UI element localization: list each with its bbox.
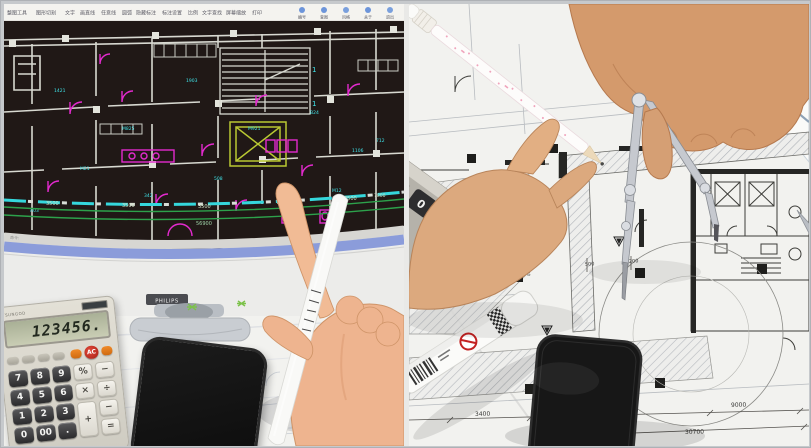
calc-key: . xyxy=(57,422,77,440)
philips-logo-text: PHILIPS xyxy=(155,299,179,305)
dimension-label: 7800 xyxy=(374,193,386,199)
calc-key: + xyxy=(77,401,99,438)
memory-key xyxy=(101,346,113,356)
tool-icon xyxy=(387,7,393,13)
photo-collage: 整图工具 图形切割 文字 画直线 任意线 圆弧 隐藏标注 标注设置 比例 文字查… xyxy=(0,0,811,448)
left-photo: 整图工具 图形切割 文字 画直线 任意线 圆弧 隐藏标注 标注设置 比例 文字查… xyxy=(4,4,404,446)
function-key xyxy=(37,353,50,361)
calc-key: 8 xyxy=(30,367,50,385)
dimension-total: 56900 xyxy=(196,221,212,227)
menu-item: 标注设置 xyxy=(162,10,182,17)
menu-item: 隐藏标注 xyxy=(136,10,156,17)
dimension-label: 3500 xyxy=(198,204,211,210)
calc-key: 1 xyxy=(12,407,32,425)
room-label: 508 xyxy=(214,176,223,182)
function-key xyxy=(22,355,35,363)
calc-key: 0 xyxy=(14,426,34,444)
stair-mark: 1 xyxy=(312,100,316,108)
menu-item: 任意线 xyxy=(101,10,116,17)
room-label: 342 xyxy=(144,193,153,199)
dim-label: 3400 xyxy=(475,411,491,418)
solar-panel xyxy=(81,300,108,311)
room-label: 1106 xyxy=(352,148,364,154)
tool-icon xyxy=(365,7,371,13)
ac-key: AC xyxy=(84,345,100,359)
menu-item: 文字 xyxy=(65,10,75,17)
calculator-keypad: 7 8 9 % − 4 5 6 × ÷ 1 2 3 + − 0 00 . = xyxy=(4,357,128,446)
tool-icon xyxy=(321,7,327,13)
calc-key: % xyxy=(73,363,93,381)
compass-pivot xyxy=(632,93,646,107)
room-label: 712 xyxy=(376,138,385,144)
blueprint-scene: 3400 9000 30700 500 200 2300 0 0 xyxy=(409,4,809,446)
dim-label: 9000 xyxy=(731,402,747,409)
menu-item: 打印 xyxy=(252,10,262,17)
calc-key: − xyxy=(99,398,119,416)
dimension-label: 3500 xyxy=(122,203,135,209)
room-label: 1421 xyxy=(54,88,66,94)
room-label: 1903 xyxy=(186,78,198,84)
menu-item: 文字查找 xyxy=(202,10,222,17)
calculator-brand: TSUNGOD xyxy=(4,310,26,317)
menu-icon-label: 查图 xyxy=(320,14,328,20)
smartphone-left xyxy=(129,335,269,446)
calc-key: ÷ xyxy=(97,379,117,397)
menu-item: 圆弧 xyxy=(122,10,132,17)
room-label: M921 xyxy=(248,126,261,132)
menu-item: 画直线 xyxy=(80,10,95,17)
dimension-label: 3500 xyxy=(344,196,357,202)
menu-bar: 整图工具 图形切割 文字 画直线 任意线 圆弧 隐藏标注 标注设置 比例 文字查… xyxy=(4,4,404,21)
function-key xyxy=(52,352,65,360)
calc-key: 9 xyxy=(51,365,71,383)
calc-key: 4 xyxy=(10,389,30,407)
calc-key: 5 xyxy=(32,386,52,404)
compass-shadow xyxy=(589,260,701,284)
menu-icon-label: 风格 xyxy=(342,14,350,20)
dimension-label: 3500 xyxy=(46,201,59,207)
dimension-label: 7500 xyxy=(276,200,289,206)
dim-label: 500 xyxy=(585,261,595,268)
room-label: B24 xyxy=(310,110,319,116)
calc-key: 3 xyxy=(55,403,75,421)
right-photo: 3400 9000 30700 500 200 2300 0 0 xyxy=(409,4,809,446)
tool-icon xyxy=(343,7,349,13)
command-prompt: 命令: xyxy=(10,234,20,240)
room-label: M12 xyxy=(332,188,342,194)
cad-viewport xyxy=(4,21,404,251)
philips-logo: PHILIPS xyxy=(146,294,188,305)
function-key xyxy=(7,356,20,364)
menu-item: 屏幕缩放 xyxy=(226,10,246,17)
menu-icon-label: 关于 xyxy=(364,14,372,20)
calc-key: 7 xyxy=(8,370,28,388)
calculator-display-value: 123456. xyxy=(31,316,103,341)
calc-key: − xyxy=(95,361,115,379)
menu-item: 比例 xyxy=(188,10,198,17)
menu-item: 整图工具 xyxy=(7,10,27,17)
menu-icon-label: 退出 xyxy=(386,14,394,20)
calc-key: 6 xyxy=(53,384,73,402)
calc-key: = xyxy=(101,417,121,435)
room-label: M21 xyxy=(80,166,90,172)
stair-mark: 1 xyxy=(312,66,316,74)
calc-key: × xyxy=(75,382,95,400)
memory-key xyxy=(70,349,82,359)
menu-icon-label: 编号 xyxy=(298,14,306,20)
calc-key: 2 xyxy=(34,405,54,423)
tool-icon xyxy=(299,7,305,13)
menu-item: 图形切割 xyxy=(36,10,56,17)
calculator: TSUNGOD 123456. AC 7 8 9 % − xyxy=(4,295,130,446)
room-label: M825 xyxy=(122,126,135,132)
calc-key: 00 xyxy=(36,424,56,442)
